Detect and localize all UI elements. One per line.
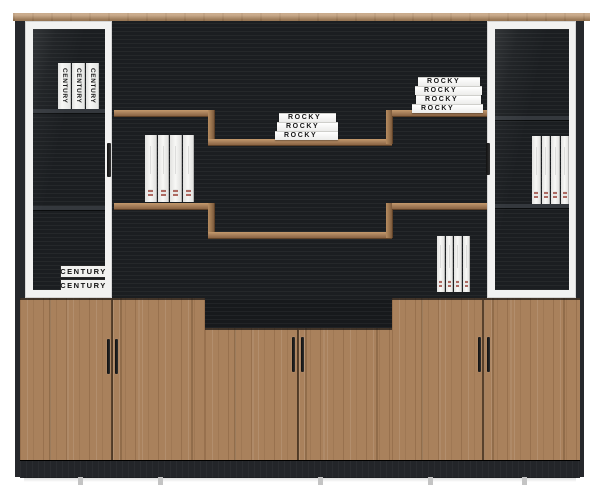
century-book-spine: CENTURY [58, 63, 71, 109]
century-books-upright: CENTURY CENTURY CENTURY [58, 63, 100, 109]
right-glass-cabinet [487, 21, 576, 298]
rocky-stack-middle: ROCKY ROCKY ROCKY [275, 113, 338, 140]
cabinet-foot [318, 477, 323, 485]
white-binder [145, 135, 157, 202]
bottom-cabinet-left [20, 298, 205, 460]
display-shelf-upper-left [114, 110, 208, 117]
century-book-stacked: CENTURY [60, 279, 105, 290]
white-binder [158, 135, 170, 202]
rocky-book: ROCKY [275, 131, 338, 140]
door-handle [292, 337, 295, 372]
cabinet-foot [158, 477, 163, 485]
book-title: CENTURY [61, 68, 68, 103]
book-title: CENTURY [89, 68, 96, 103]
book-title: CENTURY [75, 68, 82, 103]
right-cabinet-handle [486, 143, 490, 175]
plinth [20, 460, 580, 478]
display-shelf-lower-left [114, 203, 208, 210]
white-binder-group-right-cabinet [532, 136, 569, 204]
white-binder [170, 135, 182, 202]
shelf-divider [495, 116, 569, 120]
white-binder [183, 135, 195, 202]
display-shelf-lower-middle [208, 232, 392, 239]
century-book-stacked: CENTURY [60, 265, 105, 278]
rocky-book: ROCKY [279, 113, 336, 122]
bottom-cabinet-right [392, 298, 580, 460]
display-shelf-lower-right [392, 203, 487, 210]
rocky-book: ROCKY [277, 122, 338, 131]
century-book-spine: CENTURY [72, 63, 85, 109]
door-seam [297, 330, 299, 460]
rocky-stack-right: ROCKY ROCKY ROCKY ROCKY [412, 77, 483, 113]
door-handle [487, 337, 490, 372]
left-cabinet-handle [107, 143, 111, 177]
century-book-spine: CENTURY [86, 63, 99, 109]
shelf-divider [33, 109, 105, 113]
white-binder [561, 136, 570, 204]
white-binder [551, 136, 560, 204]
white-binder [454, 236, 462, 292]
rocky-book: ROCKY [418, 77, 480, 86]
bookcase-photo: CENTURY CENTURY CENTURY CENTURY CENTURY … [0, 0, 603, 500]
door-handle [478, 337, 481, 372]
white-binder-group-left [145, 135, 195, 202]
center-recess-panel [205, 300, 392, 328]
white-binder [542, 136, 551, 204]
white-binder-group-right-low [437, 236, 471, 292]
door-handle [107, 339, 110, 374]
door-seam [482, 300, 484, 460]
rocky-book: ROCKY [415, 86, 482, 95]
door-handle [115, 339, 118, 374]
shelf-divider [495, 204, 569, 208]
display-shelf-upper-middle [208, 139, 392, 146]
bottom-cabinet-center [205, 328, 392, 460]
floor-shadow [24, 477, 576, 482]
cabinet-top-board [13, 13, 590, 21]
white-binder [446, 236, 454, 292]
cabinet-foot [522, 477, 527, 485]
cabinet-foot [428, 477, 433, 485]
white-binder [437, 236, 445, 292]
white-binder [532, 136, 541, 204]
left-glass-door: CENTURY CENTURY CENTURY CENTURY CENTURY [33, 29, 105, 290]
rocky-book: ROCKY [416, 95, 481, 104]
cabinet-foot [78, 477, 83, 485]
white-binder [463, 236, 471, 292]
right-glass-door [495, 29, 569, 290]
shelf-divider [33, 206, 105, 210]
century-books-stacked: CENTURY CENTURY [60, 265, 105, 290]
door-seam [111, 300, 113, 460]
left-glass-cabinet: CENTURY CENTURY CENTURY CENTURY CENTURY [25, 21, 112, 298]
rocky-book: ROCKY [412, 104, 483, 113]
door-handle [301, 337, 304, 372]
